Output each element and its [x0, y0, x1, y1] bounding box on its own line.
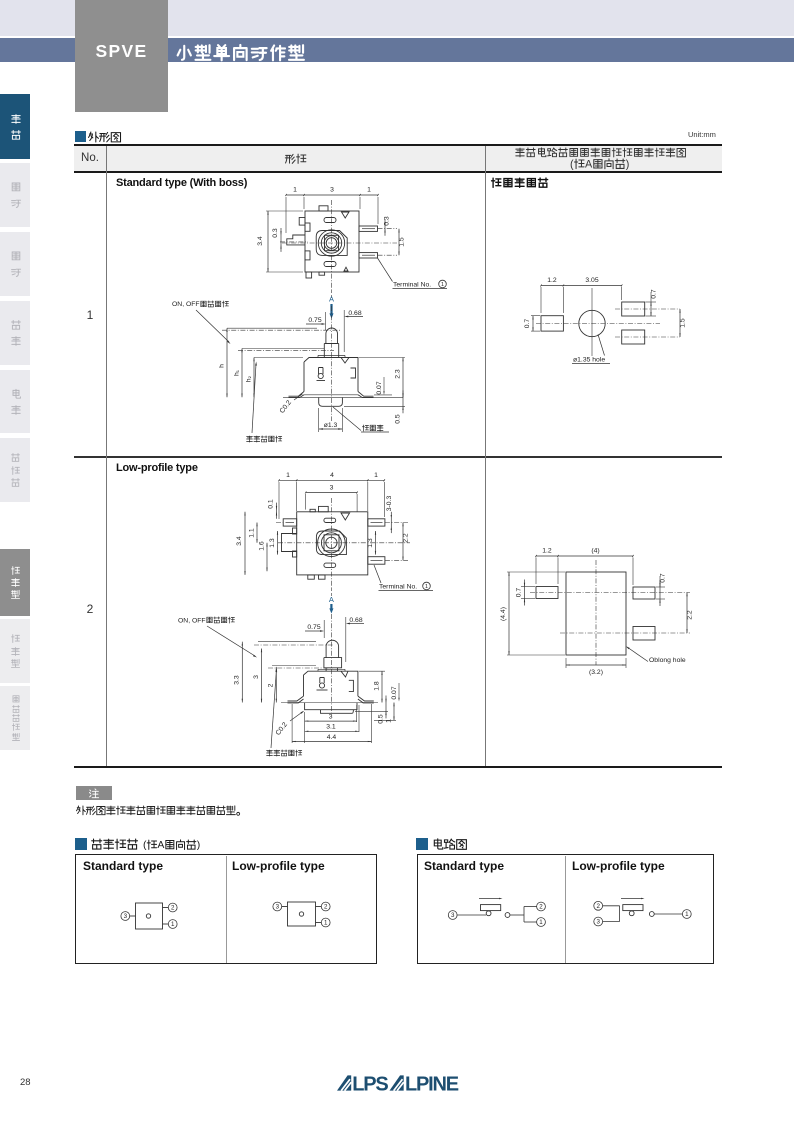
svg-text:0.3: 0.3 — [384, 216, 391, 226]
svg-text:2.2: 2.2 — [687, 610, 694, 620]
svg-text:2: 2 — [596, 903, 600, 910]
svg-text:0.3: 0.3 — [272, 228, 279, 238]
svg-text:1.2: 1.2 — [547, 277, 557, 284]
svg-text:3: 3 — [330, 485, 334, 492]
svg-text:0.7: 0.7 — [660, 573, 667, 583]
svg-text:2: 2 — [171, 905, 175, 912]
svg-text:1.6: 1.6 — [259, 541, 266, 551]
svg-text:(: ( — [570, 158, 574, 170]
svg-text:0.68: 0.68 — [349, 617, 362, 624]
svg-text:1: 1 — [286, 472, 290, 479]
svg-text:1.2: 1.2 — [542, 548, 552, 555]
svg-text:ø1.3: ø1.3 — [324, 422, 338, 429]
svg-text:1: 1 — [539, 919, 543, 926]
svg-text:1.8: 1.8 — [374, 681, 381, 691]
svg-text:2: 2 — [268, 683, 275, 687]
svg-text:2.3: 2.3 — [395, 369, 402, 379]
svg-text:3.05: 3.05 — [585, 277, 598, 284]
svg-text:h₂: h₂ — [246, 375, 253, 382]
svg-text:3: 3 — [124, 913, 128, 920]
svg-text:0.68: 0.68 — [348, 310, 361, 317]
svg-text:1: 1 — [374, 472, 378, 479]
svg-text:2: 2 — [539, 904, 543, 911]
svg-text:1.5: 1.5 — [680, 318, 687, 328]
svg-text:1: 1 — [425, 584, 428, 590]
svg-text:(4.4): (4.4) — [500, 607, 507, 621]
svg-text:1: 1 — [293, 187, 297, 194]
svg-text:A: A — [157, 839, 164, 851]
svg-text:Oblong hole: Oblong hole — [649, 657, 686, 664]
svg-text:2: 2 — [324, 904, 328, 911]
svg-text:3.4: 3.4 — [236, 536, 243, 546]
svg-text:3.3: 3.3 — [234, 675, 241, 685]
svg-text:0.7: 0.7 — [516, 588, 523, 598]
svg-text:0.75: 0.75 — [308, 317, 321, 324]
svg-text:0.07: 0.07 — [376, 381, 383, 394]
svg-text:1: 1 — [441, 282, 444, 288]
svg-text:A: A — [585, 158, 593, 170]
svg-text:0.7: 0.7 — [651, 289, 658, 299]
svg-text:1: 1 — [685, 911, 689, 918]
svg-text:3: 3 — [330, 187, 334, 194]
svg-text:1.1: 1.1 — [249, 528, 256, 538]
svg-text:LPINE: LPINE — [405, 1075, 459, 1092]
svg-text:4.4: 4.4 — [327, 734, 337, 741]
svg-text:3.4: 3.4 — [257, 236, 264, 246]
svg-text:Terminal No.: Terminal No. — [379, 584, 417, 591]
svg-text:3: 3 — [276, 904, 280, 911]
svg-text:C0.2: C0.2 — [279, 399, 293, 415]
svg-text:(: ( — [143, 839, 147, 851]
svg-text:3: 3 — [451, 912, 455, 919]
svg-text:0.5: 0.5 — [395, 414, 402, 424]
svg-text:C0.2: C0.2 — [275, 721, 289, 737]
svg-text:3-0.3: 3-0.3 — [386, 496, 393, 512]
svg-text:3.1: 3.1 — [326, 724, 336, 731]
svg-text:3: 3 — [596, 919, 600, 926]
svg-text:h: h — [219, 364, 226, 368]
svg-text:2.2: 2.2 — [403, 533, 410, 543]
svg-text:(4): (4) — [591, 548, 599, 555]
svg-text:): ) — [197, 839, 201, 851]
svg-text:1.3: 1.3 — [269, 538, 276, 548]
svg-text:0.07: 0.07 — [391, 686, 398, 699]
svg-text:0.7: 0.7 — [524, 319, 531, 329]
svg-text:ø1.35 hole: ø1.35 hole — [573, 357, 605, 364]
svg-text:ON, OFF: ON, OFF — [172, 301, 200, 308]
svg-text:ON, OFF: ON, OFF — [178, 618, 206, 625]
svg-text:1: 1 — [386, 719, 393, 723]
svg-text:(3.2): (3.2) — [589, 669, 603, 676]
svg-text:1: 1 — [324, 920, 328, 927]
svg-text:0.75: 0.75 — [307, 624, 320, 631]
svg-text:h₁: h₁ — [234, 369, 241, 376]
svg-text:A: A — [329, 595, 334, 604]
svg-text:): ) — [626, 158, 630, 170]
svg-text:0.5: 0.5 — [378, 714, 385, 724]
svg-text:1.3: 1.3 — [367, 538, 374, 548]
svg-text:Terminal No.: Terminal No. — [393, 282, 431, 289]
svg-text:0.1: 0.1 — [268, 499, 275, 509]
svg-text:3: 3 — [329, 714, 333, 721]
svg-text:4: 4 — [330, 472, 334, 479]
svg-text:1: 1 — [367, 187, 371, 194]
svg-text:1: 1 — [171, 921, 175, 928]
svg-text:1.5: 1.5 — [399, 237, 406, 247]
svg-text:3: 3 — [253, 675, 260, 679]
svg-text:LPS: LPS — [352, 1075, 388, 1092]
